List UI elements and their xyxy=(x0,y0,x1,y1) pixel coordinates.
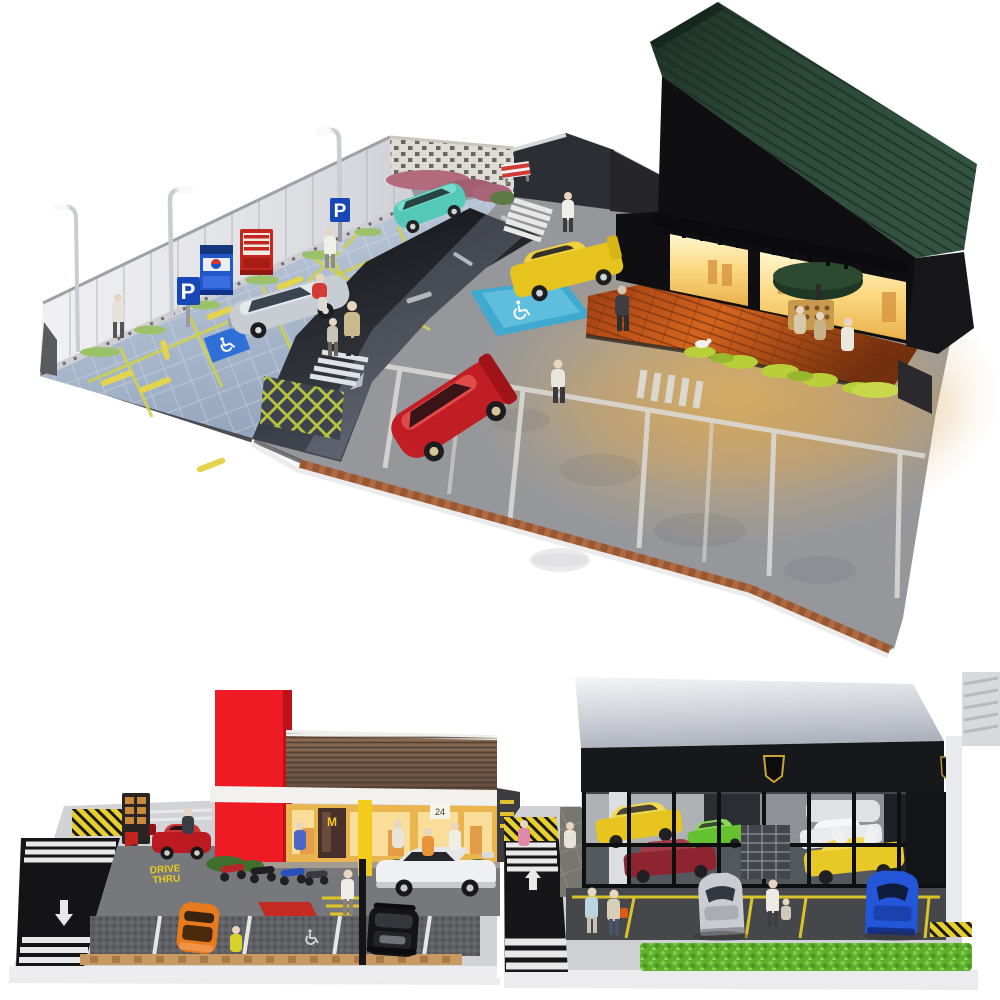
svg-text:P: P xyxy=(181,279,196,304)
svg-text:P: P xyxy=(334,201,347,222)
svg-text:THRU: THRU xyxy=(152,873,180,886)
svg-text:M: M xyxy=(327,815,337,829)
svg-text:24: 24 xyxy=(435,807,445,817)
